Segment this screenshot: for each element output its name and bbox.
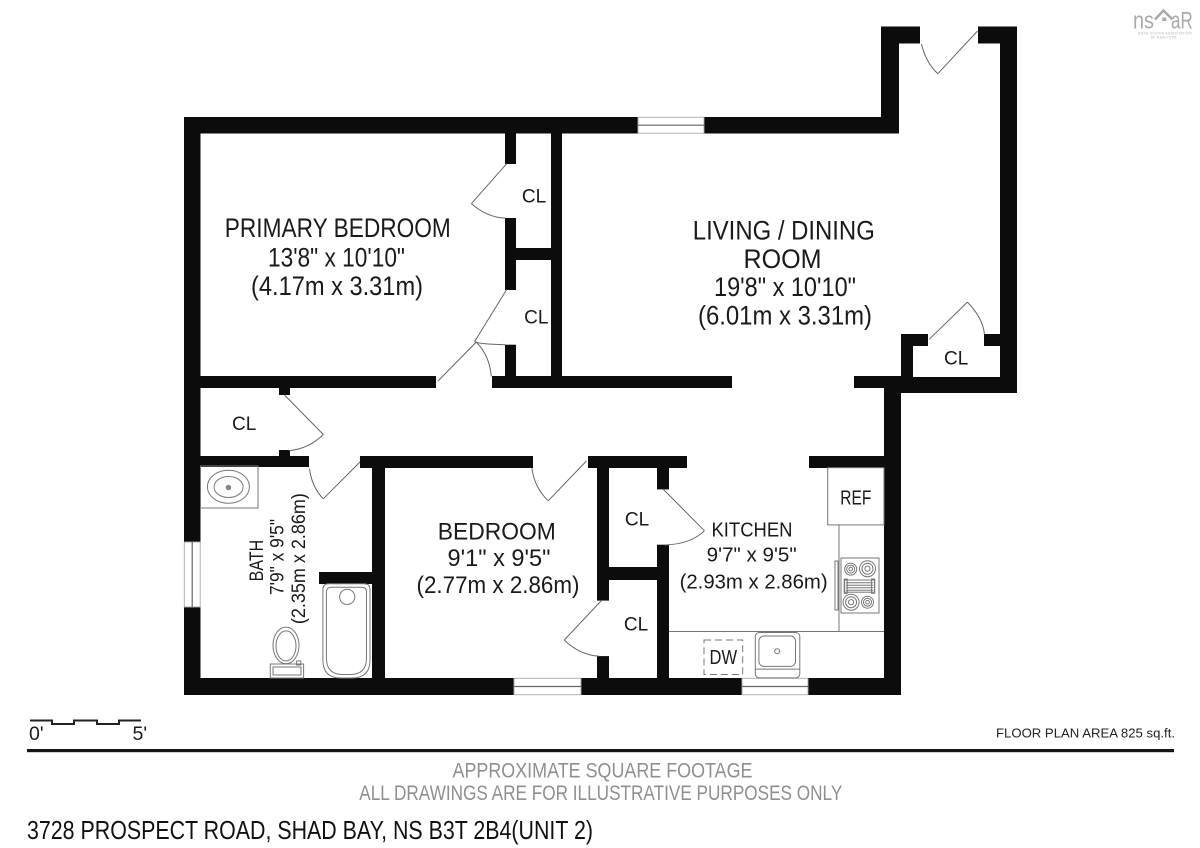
svg-text:aR: aR (1171, 8, 1193, 35)
svg-text:ROOM: ROOM (744, 244, 822, 274)
svg-text:0': 0' (29, 723, 44, 745)
svg-text:CL: CL (624, 614, 648, 635)
svg-text:7'9" x 9'5": 7'9" x 9'5" (266, 519, 288, 595)
svg-text:(6.01m x 3.31m): (6.01m x 3.31m) (698, 301, 872, 331)
svg-text:ALL DRAWINGS ARE FOR ILLUSTRAT: ALL DRAWINGS ARE FOR ILLUSTRATIVE PURPOS… (359, 782, 842, 805)
svg-text:CL: CL (232, 414, 256, 435)
svg-text:FLOOR PLAN AREA 825 sq.ft.: FLOOR PLAN AREA 825 sq.ft. (996, 726, 1175, 741)
svg-text:BEDROOM: BEDROOM (438, 519, 556, 546)
svg-text:3728 PROSPECT ROAD, SHAD BAY,: 3728 PROSPECT ROAD, SHAD BAY, NS B3T 2B4… (27, 817, 593, 845)
svg-text:LIVING / DINING: LIVING / DINING (693, 216, 875, 246)
svg-text:APPROXIMATE SQUARE FOOTAGE: APPROXIMATE SQUARE FOOTAGE (453, 760, 753, 783)
svg-text:ns: ns (1133, 8, 1154, 35)
svg-text:CL: CL (524, 307, 548, 328)
svg-text:CL: CL (625, 509, 649, 530)
svg-text:CL: CL (944, 349, 968, 370)
svg-text:(2.93m x 2.86m): (2.93m x 2.86m) (680, 572, 828, 594)
svg-text:KITCHEN: KITCHEN (712, 520, 793, 542)
svg-text:REF: REF (840, 486, 871, 509)
svg-text:DW: DW (710, 646, 738, 669)
svg-text:OF REALTORS: OF REALTORS (1151, 36, 1177, 40)
svg-text:9'7" x 9'5": 9'7" x 9'5" (707, 545, 797, 567)
svg-text:13'8" x 10'10": 13'8" x 10'10" (268, 243, 405, 273)
svg-text:5': 5' (133, 723, 148, 745)
svg-text:(2.35m x 2.86m): (2.35m x 2.86m) (288, 493, 310, 624)
svg-text:(2.77m x 2.86m): (2.77m x 2.86m) (417, 572, 580, 599)
svg-text:9'1" x 9'5": 9'1" x 9'5" (448, 545, 551, 572)
svg-text:BATH: BATH (246, 540, 268, 582)
svg-text:PRIMARY BEDROOM: PRIMARY BEDROOM (225, 213, 451, 243)
svg-text:19'8" x 10'10": 19'8" x 10'10" (714, 272, 856, 302)
svg-text:CL: CL (522, 186, 546, 207)
svg-text:(4.17m x 3.31m): (4.17m x 3.31m) (251, 271, 423, 301)
